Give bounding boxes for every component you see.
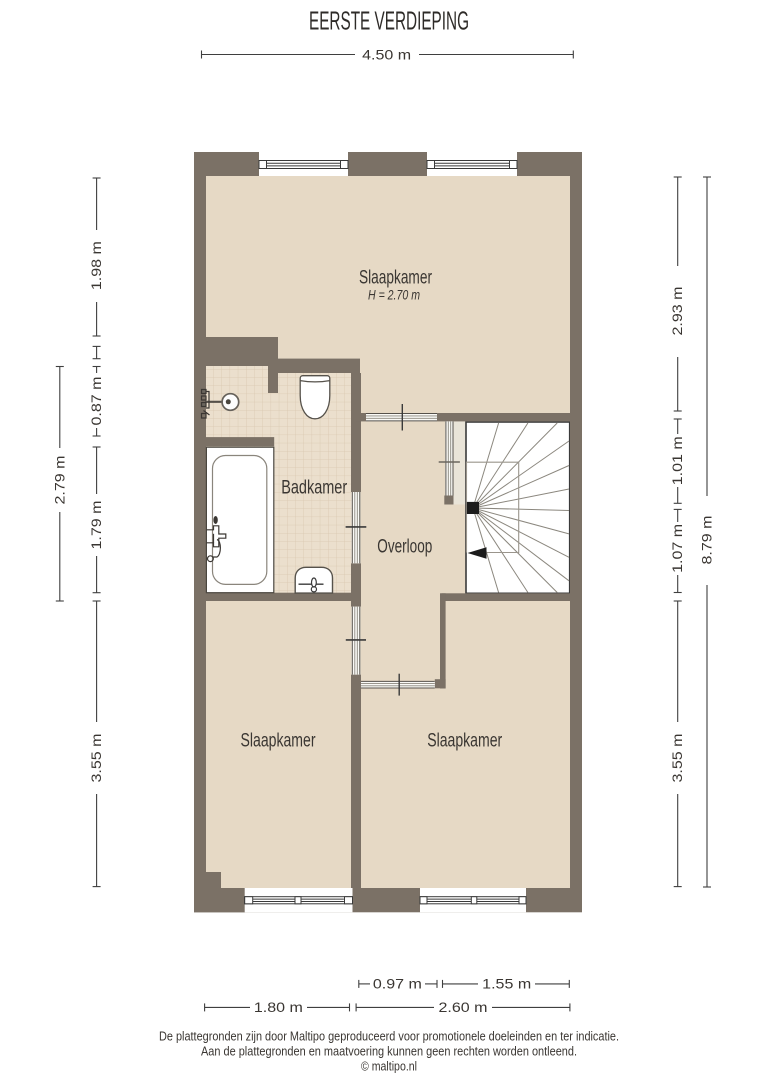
- svg-text:© maltipo.nl: © maltipo.nl: [361, 1060, 417, 1074]
- svg-text:8.79 m: 8.79 m: [700, 516, 715, 565]
- svg-text:2.60 m: 2.60 m: [439, 1000, 488, 1015]
- svg-text:4.50 m: 4.50 m: [362, 47, 411, 62]
- svg-text:Overloop: Overloop: [377, 537, 432, 558]
- svg-text:Slaapkamer: Slaapkamer: [427, 731, 502, 752]
- svg-text:1.80 m: 1.80 m: [254, 1000, 303, 1015]
- svg-text:Slaapkamer: Slaapkamer: [359, 268, 432, 289]
- svg-text:0.97 m: 0.97 m: [373, 977, 422, 992]
- svg-text:Slaapkamer: Slaapkamer: [241, 731, 316, 752]
- svg-text:H = 2.70 m: H = 2.70 m: [368, 287, 420, 302]
- svg-text:1.01 m: 1.01 m: [670, 436, 685, 485]
- svg-text:Badkamer: Badkamer: [281, 478, 348, 499]
- svg-text:Aan de plattegronden en maatvo: Aan de plattegronden en maatvoering kunn…: [201, 1045, 577, 1059]
- svg-text:0.87 m: 0.87 m: [89, 377, 104, 426]
- svg-text:1.98 m: 1.98 m: [89, 241, 104, 290]
- svg-text:1.07 m: 1.07 m: [670, 524, 685, 573]
- svg-text:3.55 m: 3.55 m: [670, 734, 685, 783]
- svg-text:De plattegronden zijn door Mal: De plattegronden zijn door Maltipo gepro…: [159, 1030, 619, 1044]
- svg-text:1.79 m: 1.79 m: [89, 501, 104, 550]
- svg-text:3.55 m: 3.55 m: [89, 734, 104, 783]
- svg-text:2.79 m: 2.79 m: [52, 456, 67, 505]
- svg-text:EERSTE VERDIEPING: EERSTE VERDIEPING: [309, 8, 469, 36]
- svg-text:1.55 m: 1.55 m: [482, 977, 531, 992]
- svg-text:2.93 m: 2.93 m: [670, 287, 685, 336]
